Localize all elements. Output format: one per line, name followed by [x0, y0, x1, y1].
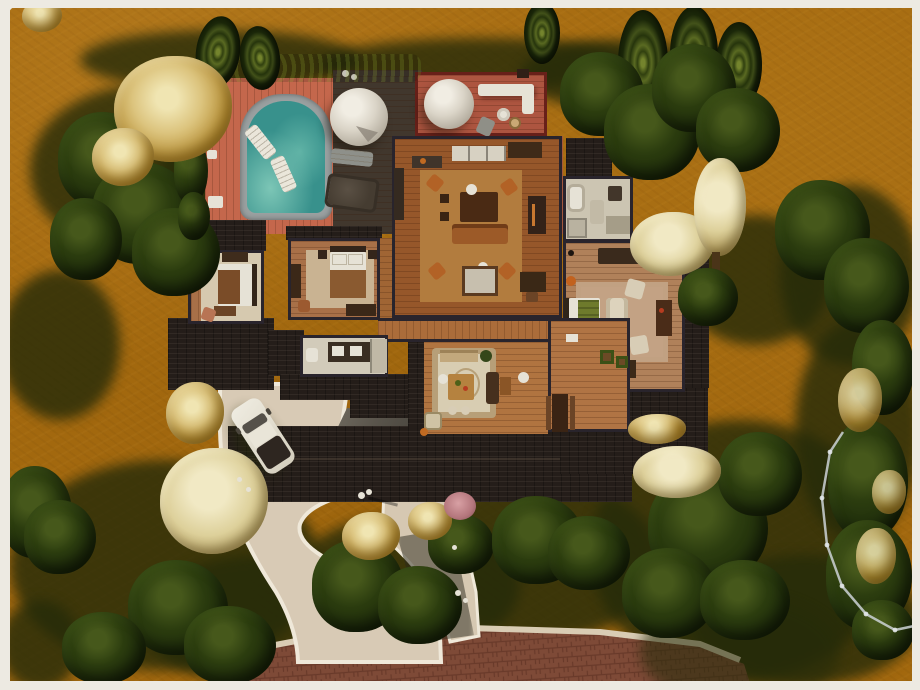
window-band: [452, 146, 506, 161]
console-table[interactable]: [412, 156, 442, 168]
outdoor-sectional[interactable]: [522, 84, 534, 114]
path-light: [246, 487, 251, 492]
pool-table[interactable]: [462, 266, 498, 296]
end-table[interactable]: [440, 194, 449, 203]
nightstand[interactable]: [318, 250, 327, 259]
hallway: [378, 318, 564, 342]
bed-blanket: [330, 270, 366, 298]
desk[interactable]: [520, 272, 546, 292]
table-decor: [455, 380, 461, 386]
dome-tent[interactable]: [330, 88, 388, 146]
pillow: [333, 255, 346, 264]
dining-table[interactable]: [448, 374, 474, 400]
dining-bench[interactable]: [440, 350, 478, 362]
cabinet[interactable]: [508, 142, 542, 158]
dome-tent[interactable]: [424, 79, 474, 129]
roof-section: [280, 374, 352, 400]
bench[interactable]: [570, 396, 575, 430]
pine-tree: [524, 2, 560, 64]
shower[interactable]: [567, 218, 587, 238]
roof-section: [168, 318, 274, 390]
planter-box[interactable]: [600, 350, 614, 364]
coffee-table[interactable]: [460, 192, 498, 222]
farm-table[interactable]: [552, 394, 568, 432]
tv-screen: [532, 204, 535, 226]
toilet[interactable]: [608, 186, 622, 201]
nightstand[interactable]: [368, 250, 377, 259]
floor-lamp: [568, 250, 574, 256]
path-light: [455, 590, 461, 596]
pool[interactable]: [247, 101, 325, 213]
boucle-chair[interactable]: [629, 335, 650, 356]
roof-section: [268, 330, 304, 376]
decor-item: [240, 282, 249, 291]
tree: [824, 238, 909, 333]
frame-border: [0, 681, 920, 690]
tree: [24, 500, 96, 574]
tree: [378, 566, 462, 644]
hallway: [380, 238, 392, 320]
tree: [852, 600, 914, 660]
deck-chair[interactable]: [208, 196, 223, 208]
desk-chair[interactable]: [526, 292, 538, 302]
deck-table[interactable]: [207, 150, 217, 159]
chimney: [517, 69, 529, 78]
tree: [184, 606, 276, 684]
frame-border: [912, 0, 920, 690]
side-table[interactable]: [438, 374, 448, 384]
shower[interactable]: [370, 339, 387, 373]
end-table[interactable]: [440, 212, 449, 221]
chaise[interactable]: [486, 372, 499, 404]
bed-blanket: [218, 270, 240, 304]
wicker-chair[interactable]: [424, 412, 442, 430]
tree: [700, 560, 790, 640]
toilet[interactable]: [306, 348, 318, 362]
bench[interactable]: [214, 306, 236, 316]
dresser[interactable]: [291, 264, 301, 298]
console-table[interactable]: [500, 377, 511, 395]
bathtub[interactable]: [567, 184, 585, 212]
pouf[interactable]: [461, 406, 470, 415]
tree: [718, 432, 802, 516]
patio-table[interactable]: [497, 108, 510, 121]
decor-item: [420, 158, 426, 164]
bath-vanity[interactable]: [606, 216, 630, 234]
pouf[interactable]: [448, 406, 457, 415]
decor-item: [659, 308, 664, 313]
street-lamp: [366, 489, 372, 495]
kitchen-counter[interactable]: [394, 168, 404, 220]
bench[interactable]: [546, 396, 551, 430]
dresser[interactable]: [222, 252, 248, 262]
game-screenshot: [0, 0, 920, 690]
dresser[interactable]: [656, 300, 672, 336]
sink: [332, 346, 344, 356]
bath-mat: [590, 200, 604, 224]
tree: [50, 198, 122, 280]
side-table[interactable]: [518, 372, 529, 383]
sink: [350, 346, 362, 356]
tree: [696, 88, 780, 172]
plant[interactable]: [480, 350, 492, 362]
tree: [62, 612, 146, 684]
floor-lamp[interactable]: [466, 184, 477, 195]
street-lamp[interactable]: [358, 492, 365, 499]
chair[interactable]: [298, 300, 310, 312]
pouf[interactable]: [566, 276, 576, 286]
path-light: [237, 477, 242, 482]
frame-border: [0, 0, 10, 690]
path-light: [452, 545, 457, 550]
pink-flower-bush: [444, 492, 476, 520]
pillow: [349, 255, 362, 264]
wardrobe[interactable]: [346, 304, 376, 316]
tree: [548, 516, 630, 590]
door-mat: [566, 334, 578, 342]
frame-border: [0, 0, 920, 8]
pouf[interactable]: [420, 428, 428, 436]
path-light: [463, 598, 468, 603]
hot-tub[interactable]: [324, 173, 380, 214]
tv-console[interactable]: [528, 196, 546, 234]
planter-box[interactable]: [616, 356, 628, 368]
shrub: [678, 268, 738, 326]
bed-headboard: [252, 264, 257, 306]
shrub: [178, 192, 210, 240]
table-decor: [463, 386, 468, 391]
sofa[interactable]: [452, 224, 508, 244]
wicker-chair[interactable]: [509, 117, 521, 129]
